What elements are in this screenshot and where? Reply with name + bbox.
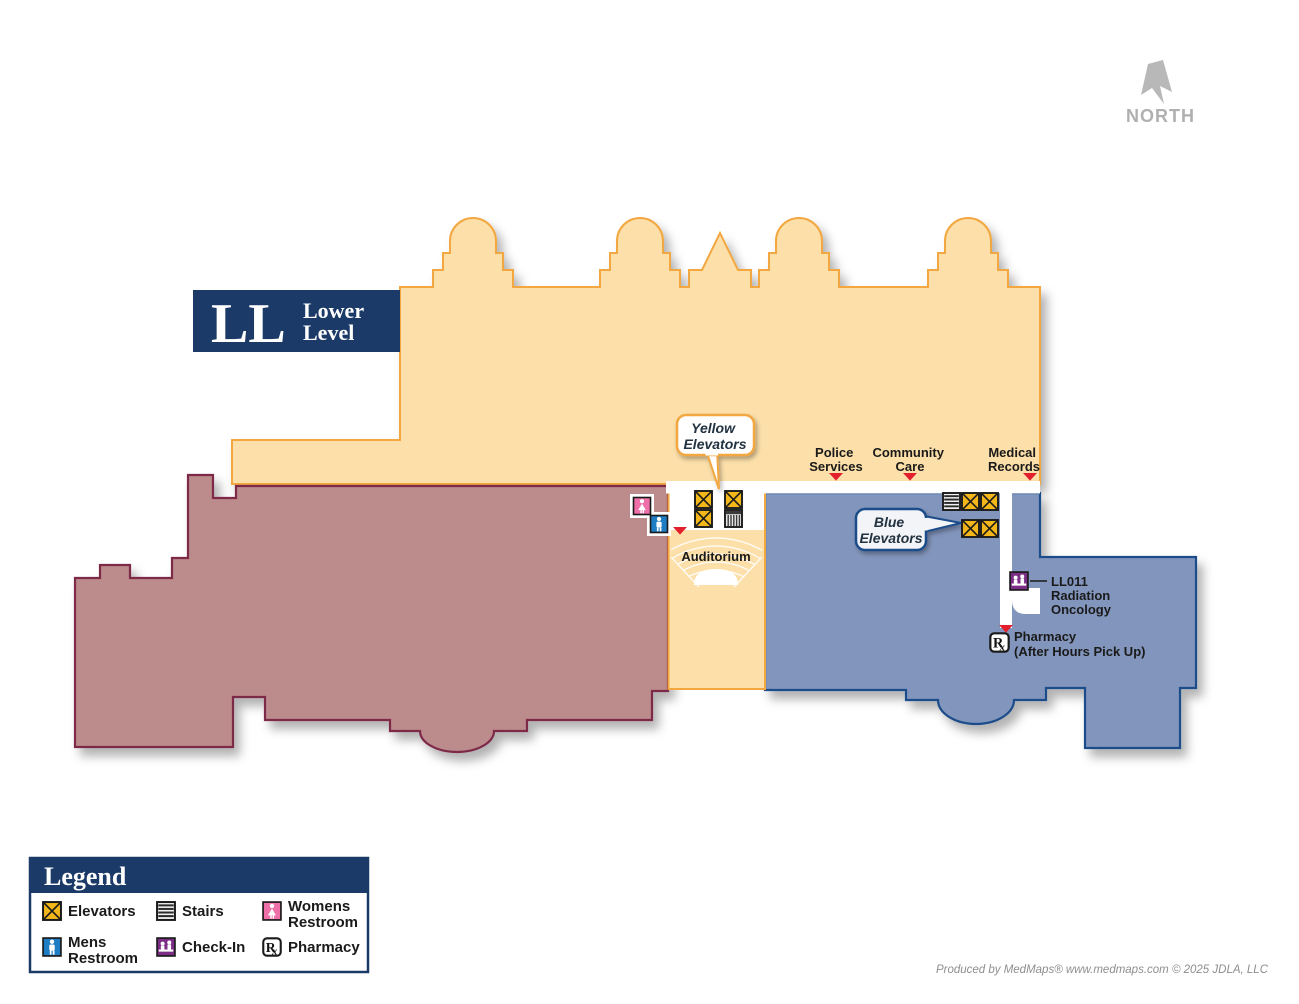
stairs-icon (157, 902, 175, 920)
stairs-icon (943, 493, 960, 510)
north-label: NORTH (1126, 106, 1195, 126)
east-corridor (1000, 493, 1012, 628)
elevator-icon (695, 510, 712, 527)
check-in-icon (1010, 572, 1028, 590)
svg-text:Stairs: Stairs (182, 903, 224, 920)
level-code: LL (211, 293, 286, 355)
floor-plan-page: R x (0, 0, 1299, 1004)
pharmacy-icon (263, 938, 280, 957)
elevator-icon (962, 493, 979, 510)
north-compass: NORTH (1126, 60, 1195, 126)
svg-text:WomensRestroom: WomensRestroom (288, 898, 358, 931)
legend: Legend Elevators Stairs WomensRestroom M… (30, 858, 368, 972)
elevator-icon (43, 902, 61, 920)
attribution: Produced by MedMaps® www.medmaps.com © 2… (936, 964, 1269, 976)
pharmacy-icon (990, 633, 1008, 653)
svg-text:Elevators: Elevators (68, 903, 136, 920)
medical-records-label: Medical Records (988, 445, 1040, 474)
mens-restroom-icon (651, 516, 668, 533)
elevator-icon (962, 520, 979, 537)
north-arrow-icon (1141, 60, 1172, 104)
floor-plan-map: R x (0, 0, 1299, 1004)
yellow-elevators-callout-text: Yellow Elevators (683, 420, 746, 452)
svg-text:Check-In: Check-In (182, 939, 245, 956)
west-wing-area (75, 475, 668, 752)
radiation-oncology-entry (1012, 588, 1040, 614)
police-services-label: Police Services (809, 445, 863, 474)
elevator-lobby (670, 481, 765, 530)
svg-text:Pharmacy: Pharmacy (288, 939, 360, 956)
womens-restroom-icon (263, 902, 281, 920)
level-title-box: LL Lower Level (193, 290, 400, 355)
legend-item-pharmacy: Pharmacy (263, 938, 360, 957)
check-in-icon (157, 938, 175, 956)
mens-restroom-icon (43, 938, 61, 956)
elevator-icon (981, 520, 998, 537)
elevator-icon (725, 491, 742, 508)
legend-item-stairs: Stairs (157, 902, 224, 920)
elevator-icon (981, 493, 998, 510)
legend-title: Legend (44, 862, 127, 891)
legend-item-check-in: Check-In (157, 938, 245, 956)
womens-restroom-icon (634, 498, 651, 515)
stairs-icon (725, 510, 742, 527)
auditorium-label: Auditorium (681, 549, 750, 564)
legend-item-elevators: Elevators (43, 902, 135, 920)
elevator-icon (695, 491, 712, 508)
